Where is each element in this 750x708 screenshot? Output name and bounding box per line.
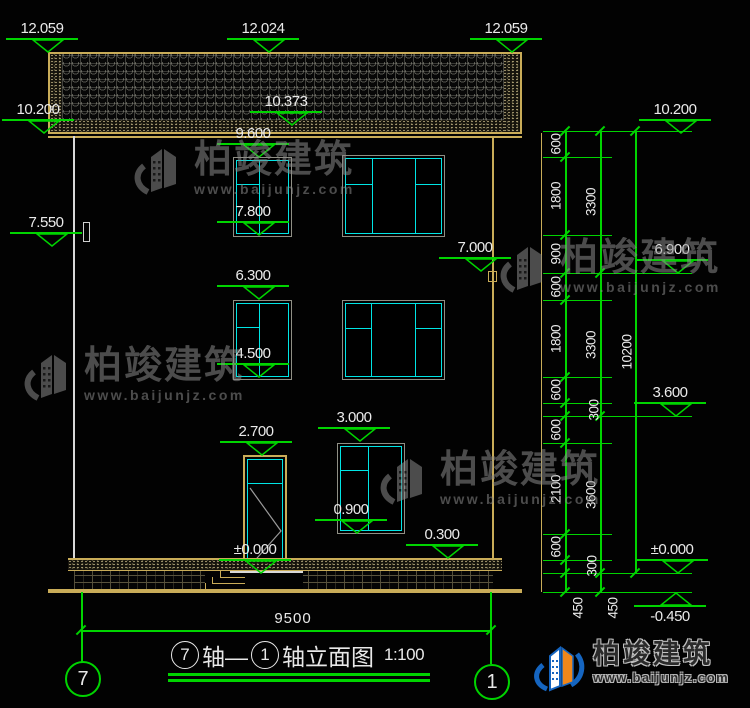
elevation-marker: 3.600: [634, 385, 718, 417]
axis-bubble-1-label: 1: [486, 671, 497, 694]
elevation-marker: 3.000: [318, 410, 402, 442]
elevation-marker: 10.373: [250, 94, 334, 126]
elevation-marker: 4.500: [217, 346, 301, 378]
elevation-value: -0.450: [634, 608, 706, 625]
dim-value-label: 900: [549, 243, 564, 264]
roof-right-gable-edge: [502, 54, 520, 132]
right-wall-bracket: [488, 271, 497, 282]
elevation-value: 10.200: [2, 101, 74, 118]
elevation-value: 9.600: [217, 125, 289, 142]
elevation-value: 12.024: [227, 20, 299, 37]
dim-value-label: 300: [587, 399, 602, 420]
elevation-value: ±0.000: [636, 541, 708, 558]
dim-vertical-line: [565, 131, 567, 592]
elevation-marker: 10.200: [639, 102, 723, 134]
dim-value-label: 1800: [549, 325, 564, 353]
dim-vertical-line: [600, 131, 602, 592]
elevation-value: 3.600: [634, 384, 706, 401]
elevation-triangle-icon: [36, 233, 68, 247]
elevation-marker: 12.059: [470, 21, 554, 53]
brand-logo-url: www.baijunjz.com: [593, 670, 729, 685]
title-joiner: 轴—: [202, 638, 248, 672]
dim-value-label: 3300: [584, 188, 599, 216]
dim-value-label: 3600: [584, 481, 599, 509]
elevation-value: 0.900: [315, 501, 387, 518]
elevation-marker: 6.900: [636, 242, 720, 274]
drawing-title: 7轴—1轴立面图1:100: [168, 638, 424, 672]
ground-line: [48, 589, 522, 593]
elevation-value: 10.200: [639, 101, 711, 118]
elevation-marker: ±0.000: [219, 542, 303, 574]
axis-bubble-7-label: 7: [77, 668, 88, 691]
dim-value-label: 3300: [584, 331, 599, 359]
dim-value-label: 1800: [549, 182, 564, 210]
dim-level-line: [543, 235, 612, 236]
watermark: 柏竣建筑 www.baijunjz.com: [380, 450, 601, 508]
dim-value-label: 450: [571, 597, 586, 618]
elevation-value: 4.500: [217, 345, 289, 362]
window-frame: [345, 158, 442, 234]
elevation-marker: 6.300: [217, 268, 301, 300]
elevation-marker: 7.000: [439, 240, 523, 272]
elevation-triangle-icon: [665, 120, 697, 134]
axis7-extension-line: [81, 592, 83, 662]
elevation-value: 7.550: [10, 214, 82, 231]
elevation-value: ±0.000: [219, 541, 291, 558]
elevation-value: 6.300: [217, 267, 289, 284]
elevation-marker: 12.059: [6, 21, 90, 53]
watermark-building-icon: [24, 346, 78, 404]
elevation-triangle-icon: [28, 120, 60, 134]
brand-logo: 柏竣建筑 www.baijunjz.com: [533, 640, 729, 694]
title-underline-2: [168, 679, 430, 682]
watermark-building-icon: [134, 140, 188, 198]
axis1-extension-line: [490, 592, 492, 664]
right-wall-line: [492, 137, 494, 559]
elevation-triangle-icon: [32, 39, 64, 53]
bottom-dim-text: 9500: [263, 610, 323, 627]
right-extension-line: [541, 133, 542, 592]
elevation-triangle-icon: [243, 222, 275, 236]
window-2f-large: [342, 300, 445, 380]
elevation-triangle-icon: [432, 545, 464, 559]
dim-value-label: 600: [549, 419, 564, 440]
title-suffix: 轴立面图: [282, 638, 374, 672]
title-underline-1: [168, 673, 430, 676]
elevation-marker: 0.900: [315, 502, 399, 534]
dim-value-label: 300: [585, 555, 600, 576]
elevation-marker: 7.550: [10, 215, 94, 247]
brand-logo-icon: [533, 640, 587, 694]
dim-vertical-line: [635, 131, 637, 573]
title-axis-end-circle: 1: [251, 641, 279, 669]
dim-value-label: 600: [549, 133, 564, 154]
title-scale: 1:100: [384, 645, 424, 665]
elevation-marker: 2.700: [220, 424, 304, 456]
dim-value-label: 2100: [549, 475, 564, 503]
dim-value-label: 600: [549, 379, 564, 400]
elevation-value: 0.300: [406, 526, 478, 543]
window-3f-large: [342, 155, 445, 237]
dim-value-label: 600: [549, 276, 564, 297]
elevation-marker: ±0.000: [636, 542, 720, 574]
elevation-marker: 0.300: [406, 527, 490, 559]
elevation-triangle-icon: [243, 286, 275, 300]
axis-bubble-7: 7: [65, 661, 101, 697]
elevation-triangle-icon: [341, 520, 373, 534]
bottom-dim-line: [81, 630, 491, 632]
elevation-marker: -0.450: [634, 592, 718, 624]
elevation-value: 6.900: [636, 241, 708, 258]
elevation-triangle-icon: [243, 364, 275, 378]
elevation-triangle-icon: [344, 428, 376, 442]
watermark-url: www.baijunjz.com: [560, 279, 721, 295]
elevation-drawing-canvas: 6001800900600180060030060021006003004503…: [0, 0, 750, 708]
elevation-triangle-icon: [276, 112, 308, 126]
elevation-triangle-icon: [662, 560, 694, 574]
dim-level-line: [543, 534, 612, 535]
elevation-marker: 10.200: [2, 102, 86, 134]
dim-value-label: 10200: [620, 334, 635, 369]
elevation-triangle-icon: [245, 560, 277, 574]
elevation-triangle-icon: [660, 592, 692, 606]
window-frame: [345, 303, 442, 377]
elevation-triangle-icon: [465, 258, 497, 272]
elevation-triangle-icon: [496, 39, 528, 53]
watermark-name: 柏竣建筑: [440, 450, 601, 490]
dim-level-line: [543, 443, 612, 444]
elevation-triangle-icon: [662, 260, 694, 274]
elevation-value: 10.373: [250, 93, 322, 110]
elevation-marker: 9.600: [217, 126, 301, 158]
watermark: 柏竣建筑 www.baijunjz.com: [24, 346, 245, 404]
elevation-triangle-icon: [660, 403, 692, 417]
elevation-triangle-icon: [253, 39, 285, 53]
axis-bubble-1: 1: [474, 664, 510, 700]
brand-logo-name: 柏竣建筑: [593, 640, 729, 669]
elevation-value: 7.800: [217, 203, 289, 220]
dim-level-line: [543, 560, 612, 561]
dim-value-label: 600: [549, 536, 564, 557]
elevation-value: 12.059: [470, 20, 542, 37]
elevation-value: 12.059: [6, 20, 78, 37]
elevation-value: 7.000: [439, 239, 511, 256]
elevation-marker: 12.024: [227, 21, 311, 53]
elevation-value: 3.000: [318, 409, 390, 426]
dim-level-line: [543, 403, 612, 404]
elevation-value: 2.700: [220, 423, 292, 440]
elevation-triangle-icon: [243, 144, 275, 158]
elevation-marker: 7.800: [217, 204, 301, 236]
watermark-url: www.baijunjz.com: [84, 387, 245, 403]
elevation-triangle-icon: [246, 442, 278, 456]
dim-level-line: [543, 157, 612, 158]
dim-value-label: 450: [606, 597, 621, 618]
left-wall-line: [73, 136, 75, 559]
dim-level-line: [543, 300, 612, 301]
title-axis-start-circle: 7: [171, 641, 199, 669]
watermark-url: www.baijunjz.com: [440, 491, 601, 507]
dim-level-line: [543, 377, 612, 378]
